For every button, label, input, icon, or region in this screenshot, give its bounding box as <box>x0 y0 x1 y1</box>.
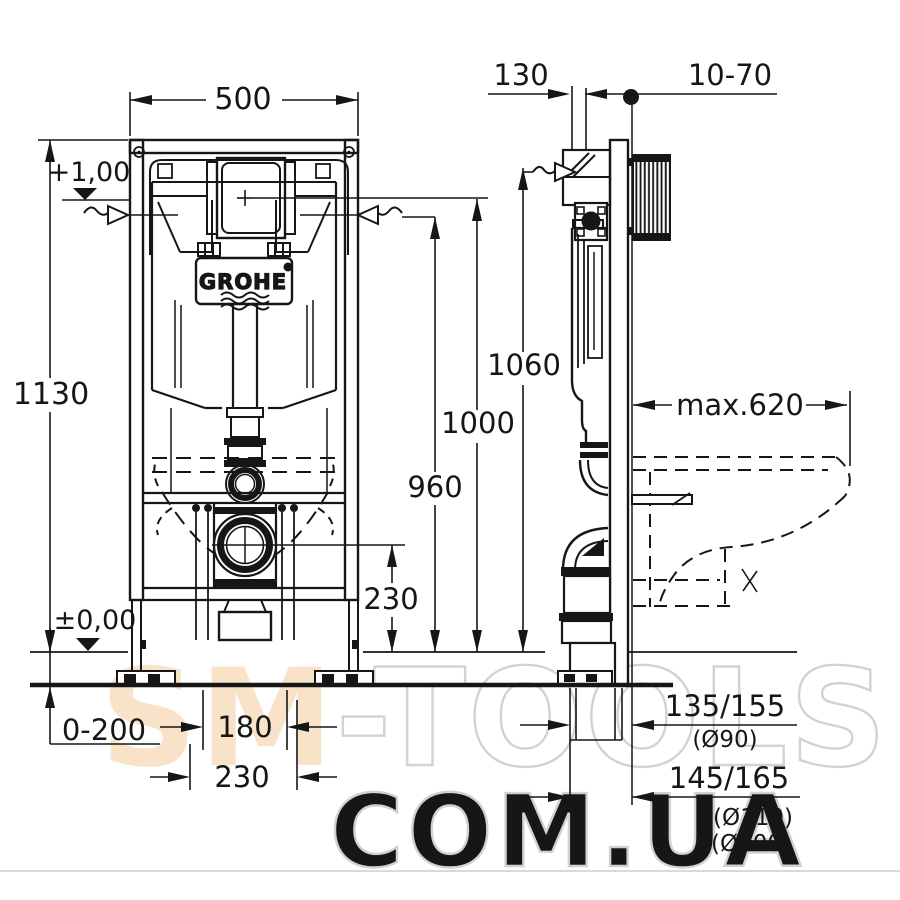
level-label: ±0,00 <box>54 605 137 636</box>
arrow-down-icon <box>45 631 55 652</box>
dim-frame-width: 500 <box>130 82 358 136</box>
wall-anchor-hatch <box>633 155 670 240</box>
frame-top-bar <box>130 140 358 153</box>
arrow-left-icon <box>585 89 607 99</box>
dim-depth: 130 <box>488 58 570 99</box>
front-view: GROHE <box>117 140 488 684</box>
dim-label: max.620 <box>676 388 804 422</box>
dim-outlet-height: 230 <box>363 545 418 652</box>
dim-label: 10-70 <box>688 58 772 92</box>
dim-label: 960 <box>407 470 462 504</box>
wave-icon <box>377 207 402 214</box>
arrow-left-icon <box>130 95 152 105</box>
dim-sublabel: (Ø110) <box>713 805 793 831</box>
dim-label: 230 <box>214 760 269 794</box>
dim-sublabel: (Ø100) <box>711 831 791 857</box>
dim-level-height: 1000 <box>441 199 515 652</box>
frame-inner-edge <box>150 160 348 255</box>
dim-label: 500 <box>214 82 271 117</box>
cistern-top <box>152 182 336 252</box>
level-triangle-icon <box>73 188 97 200</box>
reference-dot-icon <box>623 89 639 105</box>
arrow-up-icon <box>430 217 440 239</box>
wave-icon <box>84 207 109 214</box>
arrow-up-icon <box>472 199 482 221</box>
dim-label: 145/165 <box>669 761 789 795</box>
frame-right-rail <box>345 140 358 600</box>
dim-bowl-depth: max.620 <box>633 388 850 466</box>
dim-label: 0-200 <box>62 713 146 747</box>
arrow-right-icon <box>548 89 570 99</box>
flush-pipe <box>224 304 266 503</box>
dim-label: 1060 <box>487 348 561 382</box>
wall-anchor <box>628 155 670 240</box>
technical-drawing-page: SM-TOOLS COM.UA <box>0 0 900 900</box>
dim-label: 230 <box>363 582 418 616</box>
arrow-left-icon <box>633 400 655 410</box>
dim-label: 180 <box>217 710 272 744</box>
dim-wall-gap: 10-70 <box>585 58 777 99</box>
bowl-outline-side <box>633 457 850 607</box>
dim-label: 1130 <box>13 377 89 412</box>
arrow-right-icon <box>336 95 358 105</box>
arrow-up-icon <box>387 545 397 567</box>
side-foot <box>558 671 612 684</box>
level-mark-top: +1,00 <box>48 157 131 200</box>
flow-arrow-right-icon <box>108 206 128 224</box>
logo-dot-icon <box>284 263 293 272</box>
logo-waves-icon <box>221 293 269 310</box>
dim-sublabel: (Ø90) <box>692 727 757 753</box>
level-triangle-icon <box>76 638 100 651</box>
frame-left-rail <box>130 140 143 600</box>
dim-label: 135/155 <box>665 689 785 723</box>
arrow-right-icon <box>825 400 847 410</box>
flow-arrow-right-icon <box>555 163 575 181</box>
dim-label: 130 <box>493 58 548 92</box>
flow-arrow-left-icon <box>358 206 378 224</box>
arrow-up-icon <box>45 687 55 708</box>
level-label: +1,00 <box>48 157 131 188</box>
brand-plate: GROHE <box>196 258 293 310</box>
dim-label: 1000 <box>441 406 515 440</box>
rail-profile <box>610 140 628 685</box>
brand-logo: GROHE <box>199 270 287 294</box>
cistern-profile <box>572 220 608 495</box>
wave-icon <box>533 167 555 173</box>
